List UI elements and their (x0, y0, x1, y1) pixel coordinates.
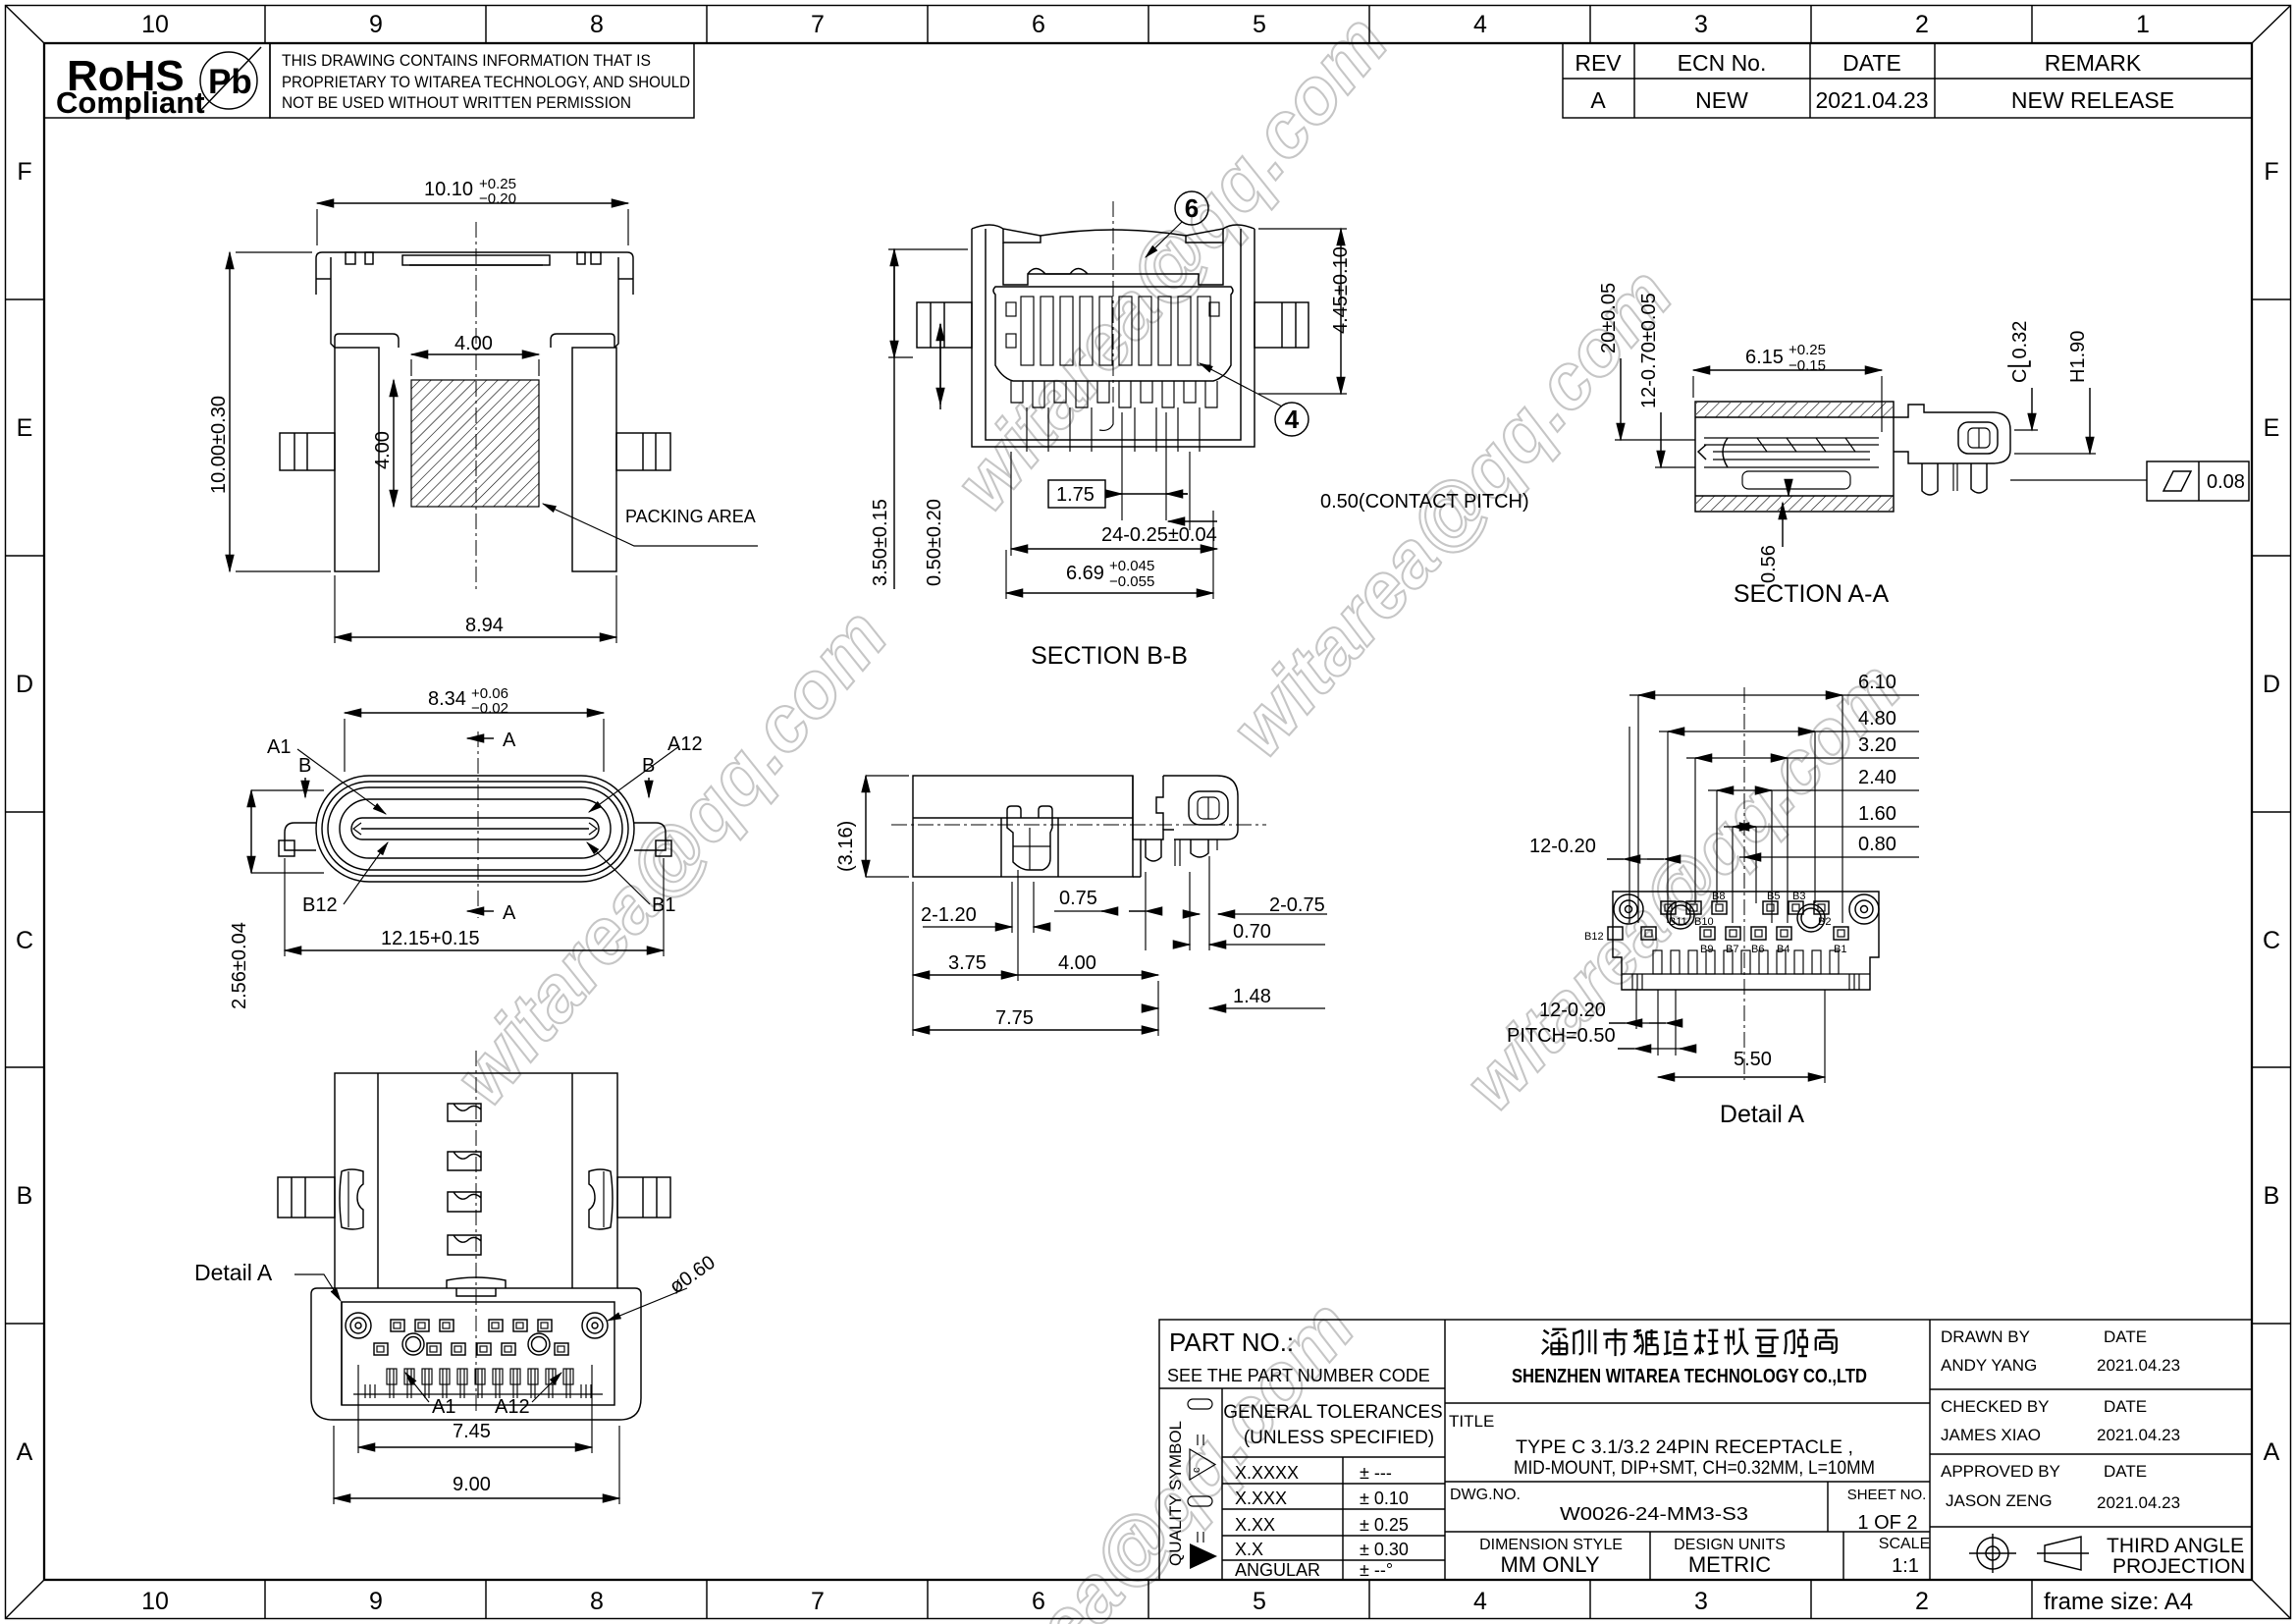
svg-text:frame size: A4: frame size: A4 (2044, 1589, 2193, 1615)
svg-text:7.45: 7.45 (453, 1421, 491, 1442)
svg-text:DESIGN UNITS: DESIGN UNITS (1674, 1537, 1786, 1553)
svg-text:+0.25: +0.25 (1789, 342, 1826, 358)
svg-text:DIMENSION STYLE: DIMENSION STYLE (1479, 1537, 1623, 1553)
svg-text:2.40: 2.40 (1858, 767, 1896, 788)
svg-text:8.94: 8.94 (465, 615, 504, 636)
svg-text:3.75: 3.75 (948, 952, 987, 974)
svg-text:5.50: 5.50 (1734, 1049, 1772, 1070)
svg-text:SHEET NO.: SHEET NO. (1847, 1487, 1927, 1503)
svg-text:B4: B4 (1777, 944, 1789, 955)
svg-text:2021.04.23: 2021.04.23 (2097, 1356, 2180, 1375)
svg-text:METRIC: METRIC (1688, 1552, 1771, 1577)
svg-text:(UNLESS SPECIFIED): (UNLESS SPECIFIED) (1244, 1428, 1434, 1448)
svg-text:SECTION A-A: SECTION A-A (1734, 580, 1890, 608)
svg-text:DATE: DATE (2104, 1327, 2147, 1346)
svg-text:± ---: ± --- (1360, 1463, 1392, 1483)
svg-text:B: B (298, 755, 311, 777)
svg-text:6: 6 (1032, 1588, 1045, 1615)
svg-text:PROJECTION: PROJECTION (2112, 1555, 2245, 1578)
svg-text:GENERAL TOLERANCES: GENERAL TOLERANCES (1223, 1402, 1443, 1423)
svg-text:APPROVED BY: APPROVED BY (1941, 1462, 2060, 1481)
svg-text:SHENZHEN WITAREA TECHNOLOGY CO: SHENZHEN WITAREA TECHNOLOGY CO.,LTD (1512, 1366, 1867, 1387)
svg-text:ANGULAR: ANGULAR (1235, 1560, 1320, 1580)
svg-text:7: 7 (811, 1588, 825, 1615)
svg-text:9.00: 9.00 (453, 1474, 491, 1495)
svg-text:REV: REV (1575, 50, 1622, 76)
svg-text:3: 3 (1694, 11, 1708, 38)
svg-text:−0.20: −0.20 (479, 190, 516, 207)
svg-text:1.75: 1.75 (1056, 484, 1095, 506)
svg-text:DWG.NO.: DWG.NO. (1450, 1487, 1521, 1503)
svg-text:DATE: DATE (2104, 1462, 2147, 1481)
svg-text:F: F (2264, 158, 2278, 186)
svg-text:PACKING AREA: PACKING AREA (625, 507, 756, 526)
svg-text:C⎣0.32: C⎣0.32 (2007, 321, 2031, 383)
svg-text:E: E (17, 414, 33, 442)
svg-text:4: 4 (1285, 405, 1300, 434)
svg-text:5: 5 (1253, 11, 1266, 38)
svg-text:A1: A1 (432, 1396, 455, 1418)
svg-text:X.XX: X.XX (1235, 1515, 1275, 1535)
svg-text:2021.04.23: 2021.04.23 (2097, 1426, 2180, 1444)
svg-text:6.15: 6.15 (1745, 347, 1784, 368)
svg-text:B12: B12 (302, 894, 338, 916)
svg-text:B2: B2 (1818, 916, 1831, 928)
svg-text:7.75: 7.75 (995, 1007, 1034, 1029)
svg-text:7: 7 (811, 11, 825, 38)
svg-text:10: 10 (141, 11, 169, 38)
svg-text:1.60: 1.60 (1858, 803, 1896, 825)
svg-text:5: 5 (1253, 1588, 1266, 1615)
svg-text:B5: B5 (1767, 891, 1780, 902)
svg-text:20±0.05: 20±0.05 (1598, 283, 1620, 353)
svg-text:TITLE: TITLE (1449, 1412, 1494, 1431)
svg-text:X.XXXX: X.XXXX (1235, 1463, 1299, 1483)
svg-text:X.X: X.X (1235, 1540, 1263, 1559)
svg-text:2-0.75: 2-0.75 (1269, 894, 1325, 916)
svg-text:JAMES XIAO: JAMES XIAO (1941, 1426, 2041, 1444)
svg-text:10: 10 (141, 1588, 169, 1615)
svg-text:B: B (642, 755, 655, 777)
svg-text:3: 3 (1694, 1588, 1708, 1615)
svg-text:JASON ZENG: JASON ZENG (1946, 1491, 2053, 1510)
svg-text:B6: B6 (1751, 944, 1764, 955)
svg-text:4.00: 4.00 (454, 333, 493, 354)
svg-text:NEW: NEW (1695, 87, 1748, 113)
svg-text:A: A (503, 730, 516, 751)
svg-text:9: 9 (369, 11, 383, 38)
svg-text:8: 8 (590, 11, 604, 38)
svg-text:MID-MOUNT, DIP+SMT, CH=0.32MM,: MID-MOUNT, DIP+SMT, CH=0.32MM, L=10MM (1514, 1458, 1875, 1479)
svg-text:H1.90: H1.90 (2067, 331, 2089, 383)
svg-text:REMARK: REMARK (2045, 50, 2142, 76)
svg-text:12-0.70±0.05: 12-0.70±0.05 (1638, 293, 1660, 408)
svg-text:0.50(CONTACT PITCH): 0.50(CONTACT PITCH) (1320, 491, 1529, 513)
svg-text:6.69: 6.69 (1066, 563, 1104, 584)
svg-text:NEW RELEASE: NEW RELEASE (2011, 87, 2174, 113)
svg-text:2.56±0.04: 2.56±0.04 (229, 922, 250, 1009)
svg-text:0.75: 0.75 (1059, 888, 1097, 909)
svg-text:TYPE C 3.1/3.2 24PIN RECEPTACL: TYPE C 3.1/3.2 24PIN RECEPTACLE , (1516, 1437, 1853, 1458)
svg-text:4.00: 4.00 (372, 431, 394, 469)
svg-text:QUALITY SYMBOL: QUALITY SYMBOL (1166, 1421, 1185, 1566)
svg-text:D: D (16, 671, 33, 698)
svg-text:12-0.20: 12-0.20 (1539, 1000, 1606, 1021)
svg-text:A: A (503, 902, 516, 924)
svg-text:3.20: 3.20 (1858, 734, 1896, 756)
svg-text:B11: B11 (1669, 916, 1687, 928)
svg-text:B9: B9 (1700, 944, 1713, 955)
svg-text:B: B (2264, 1182, 2280, 1210)
svg-text:B12: B12 (1584, 931, 1604, 943)
svg-text:F: F (17, 158, 31, 186)
svg-text:8.34: 8.34 (428, 688, 466, 710)
svg-text:24-0.25±0.04: 24-0.25±0.04 (1101, 524, 1217, 546)
svg-text:B1: B1 (1834, 944, 1846, 955)
svg-text:4.00: 4.00 (1058, 952, 1096, 974)
svg-text:1.48: 1.48 (1233, 986, 1271, 1007)
svg-text:B8: B8 (1712, 891, 1725, 902)
svg-text:6.10: 6.10 (1858, 672, 1896, 693)
svg-text:ANDY YANG: ANDY YANG (1941, 1356, 2037, 1375)
svg-text:THIS DRAWING CONTAINS INFORMAT: THIS DRAWING CONTAINS INFORMATION THAT I… (282, 52, 651, 70)
svg-text:0.80: 0.80 (1858, 834, 1896, 855)
svg-text:SEE THE PART NUMBER CODE: SEE THE PART NUMBER CODE (1167, 1366, 1430, 1385)
svg-text:SCALE: SCALE (1879, 1536, 1930, 1552)
svg-text:A12: A12 (667, 733, 703, 755)
svg-text:DRAWN BY: DRAWN BY (1941, 1327, 2030, 1346)
svg-text:E: E (2264, 414, 2280, 442)
svg-text:THIRD ANGLE: THIRD ANGLE (2107, 1535, 2244, 1557)
svg-text:2: 2 (1915, 11, 1929, 38)
svg-text:DATE: DATE (2104, 1397, 2147, 1416)
svg-text:B10: B10 (1694, 916, 1714, 928)
svg-text:C: C (16, 927, 33, 954)
svg-text:ECN No.: ECN No. (1678, 50, 1767, 76)
svg-text:2: 2 (1915, 1588, 1929, 1615)
svg-text:B: B (17, 1182, 33, 1210)
svg-text:DATE: DATE (1842, 50, 1901, 76)
svg-text:−0.15: −0.15 (1789, 357, 1826, 374)
svg-text:10.00±0.30: 10.00±0.30 (208, 396, 230, 494)
svg-text:NOT BE USED WITHOUT WRITTEN PE: NOT BE USED WITHOUT WRITTEN PERMISSION (282, 94, 631, 112)
svg-text:0.56: 0.56 (1758, 545, 1780, 583)
svg-text:PART NO.:: PART NO.: (1169, 1327, 1294, 1357)
svg-text:Detail A: Detail A (1720, 1101, 1804, 1128)
svg-text:9: 9 (369, 1588, 383, 1615)
svg-text:CHECKED BY: CHECKED BY (1941, 1397, 2050, 1416)
svg-text:C: C (2263, 927, 2280, 954)
svg-text:± --°: ± --° (1360, 1560, 1393, 1580)
svg-text:Detail A: Detail A (194, 1260, 273, 1285)
svg-text:0.70: 0.70 (1233, 921, 1271, 943)
svg-text:12-0.20: 12-0.20 (1529, 836, 1596, 857)
svg-text:12.15+0.15: 12.15+0.15 (381, 928, 480, 949)
svg-text:A: A (17, 1438, 33, 1466)
svg-text:1:1: 1:1 (1892, 1555, 1919, 1577)
svg-text:SECTION B-B: SECTION B-B (1031, 642, 1188, 670)
svg-text:PROPRIETARY TO WITAREA TECHNOL: PROPRIETARY TO WITAREA TECHNOLOGY, AND S… (282, 74, 690, 91)
svg-text:W0026-24-MM3-S3: W0026-24-MM3-S3 (1560, 1504, 1748, 1524)
svg-text:X.XXX: X.XXX (1235, 1489, 1287, 1508)
svg-text:6: 6 (1185, 193, 1199, 223)
svg-text:4: 4 (1473, 11, 1487, 38)
svg-text:PITCH=0.50: PITCH=0.50 (1507, 1025, 1616, 1047)
svg-text:Compliant: Compliant (56, 85, 205, 120)
svg-text:4.80: 4.80 (1858, 708, 1896, 730)
svg-text:3.50±0.15: 3.50±0.15 (870, 499, 891, 586)
svg-text:A12: A12 (495, 1396, 530, 1418)
svg-text:6: 6 (1032, 11, 1045, 38)
svg-text:± 0.25: ± 0.25 (1360, 1515, 1409, 1535)
svg-text:−0.055: −0.055 (1109, 573, 1154, 590)
svg-text:2021.04.23: 2021.04.23 (1815, 87, 1928, 113)
svg-text:c: c (1191, 1467, 1202, 1473)
svg-text:8: 8 (590, 1588, 604, 1615)
svg-text:A1: A1 (267, 736, 291, 758)
svg-text:A: A (1590, 87, 1606, 113)
svg-text:D: D (2263, 671, 2280, 698)
svg-text:+0.045: +0.045 (1109, 558, 1154, 574)
svg-text:A: A (2264, 1438, 2280, 1466)
svg-text:1 OF 2: 1 OF 2 (1857, 1512, 1917, 1534)
svg-text:4: 4 (1473, 1588, 1487, 1615)
svg-text:−0.02: −0.02 (471, 700, 508, 717)
svg-text:MM ONLY: MM ONLY (1500, 1552, 1599, 1577)
svg-text:10.10: 10.10 (424, 179, 473, 200)
svg-text:(3.16): (3.16) (835, 821, 857, 872)
svg-text:0.08: 0.08 (2207, 471, 2245, 493)
svg-text:B3: B3 (1792, 891, 1805, 902)
svg-text:2-1.20: 2-1.20 (921, 904, 977, 926)
svg-text:1: 1 (2136, 11, 2150, 38)
svg-text:2021.04.23: 2021.04.23 (2097, 1493, 2180, 1512)
svg-text:± 0.10: ± 0.10 (1360, 1489, 1409, 1508)
svg-text:± 0.30: ± 0.30 (1360, 1540, 1409, 1559)
svg-text:0.50±0.20: 0.50±0.20 (924, 499, 945, 586)
